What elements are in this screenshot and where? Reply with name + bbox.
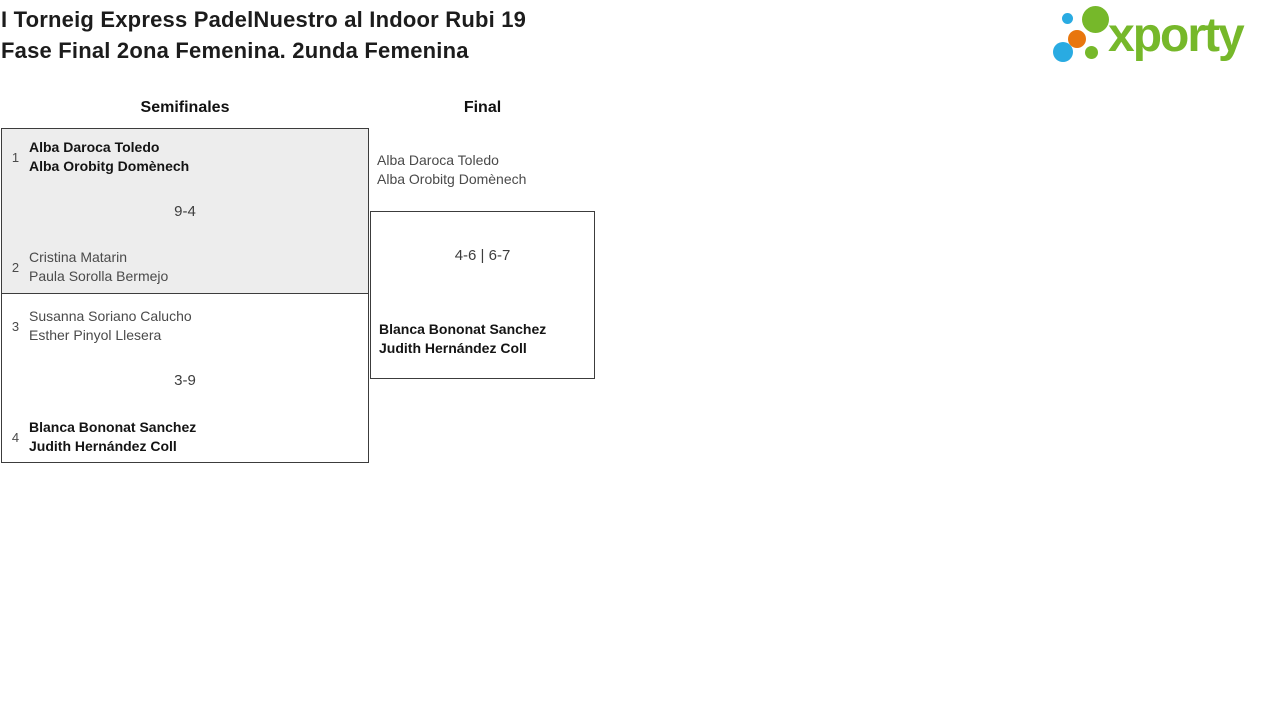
player-name: Susanna Soriano Calucho [29, 307, 192, 326]
player-name: Judith Hernández Coll [379, 339, 546, 358]
team-players: Susanna Soriano Calucho Esther Pinyol Ll… [29, 307, 192, 345]
round-header-final: Final [370, 98, 595, 117]
tournament-phase: Fase Final 2ona Femenina. 2unda Femenina [1, 35, 526, 66]
round-header-semifinals: Semifinales [0, 98, 370, 117]
seed-number: 4 [9, 430, 22, 445]
semifinal-match-1: 1 Alba Daroca Toledo Alba Orobitg Domène… [2, 129, 368, 294]
logo-dot-icon [1085, 46, 1098, 59]
player-name: Alba Orobitg Domènech [377, 170, 526, 189]
player-name: Esther Pinyol Llesera [29, 326, 192, 345]
logo-wordmark: xporty [1108, 7, 1243, 65]
logo-dot-icon [1062, 13, 1073, 24]
final-team-top: Alba Daroca Toledo Alba Orobitg Domènech [377, 151, 526, 189]
player-name: Blanca Bononat Sanchez [29, 418, 196, 437]
match-score: 9-4 [2, 204, 368, 220]
player-name: Alba Orobitg Domènech [29, 157, 189, 176]
logo-dot-icon [1053, 42, 1073, 62]
player-name: Alba Daroca Toledo [29, 138, 189, 157]
semifinals-column: 1 Alba Daroca Toledo Alba Orobitg Domène… [1, 128, 369, 463]
seed-number: 1 [9, 150, 22, 165]
match-score: 3-9 [2, 373, 368, 389]
logo-dot-icon [1082, 6, 1109, 33]
xporty-logo[interactable]: xporty [1048, 4, 1280, 68]
player-name: Paula Sorolla Bermejo [29, 267, 168, 286]
tournament-bracket-page: I Torneig Express PadelNuestro al Indoor… [0, 0, 1280, 727]
semifinal-match-2: 3 Susanna Soriano Calucho Esther Pinyol … [2, 295, 368, 462]
team-entry: 3 Susanna Soriano Calucho Esther Pinyol … [9, 307, 192, 345]
player-name: Judith Hernández Coll [29, 437, 196, 456]
seed-number: 2 [9, 260, 22, 275]
player-name: Blanca Bononat Sanchez [379, 320, 546, 339]
tournament-name: I Torneig Express PadelNuestro al Indoor… [1, 4, 526, 35]
team-entry: 4 Blanca Bononat Sanchez Judith Hernánde… [9, 418, 196, 456]
seed-number: 3 [9, 319, 22, 334]
team-players: Alba Daroca Toledo Alba Orobitg Domènech [29, 138, 189, 176]
match-score: 4-6 | 6-7 [371, 248, 594, 264]
team-entry: 1 Alba Daroca Toledo Alba Orobitg Domène… [9, 138, 189, 176]
final-match: 4-6 | 6-7 Blanca Bononat Sanchez Judith … [370, 211, 595, 379]
page-title: I Torneig Express PadelNuestro al Indoor… [1, 4, 526, 66]
final-team-bottom: Blanca Bononat Sanchez Judith Hernández … [379, 320, 546, 358]
team-entry: 2 Cristina Matarin Paula Sorolla Bermejo [9, 248, 168, 286]
team-players: Cristina Matarin Paula Sorolla Bermejo [29, 248, 168, 286]
team-players: Blanca Bononat Sanchez Judith Hernández … [29, 418, 196, 456]
player-name: Alba Daroca Toledo [377, 151, 526, 170]
player-name: Cristina Matarin [29, 248, 168, 267]
